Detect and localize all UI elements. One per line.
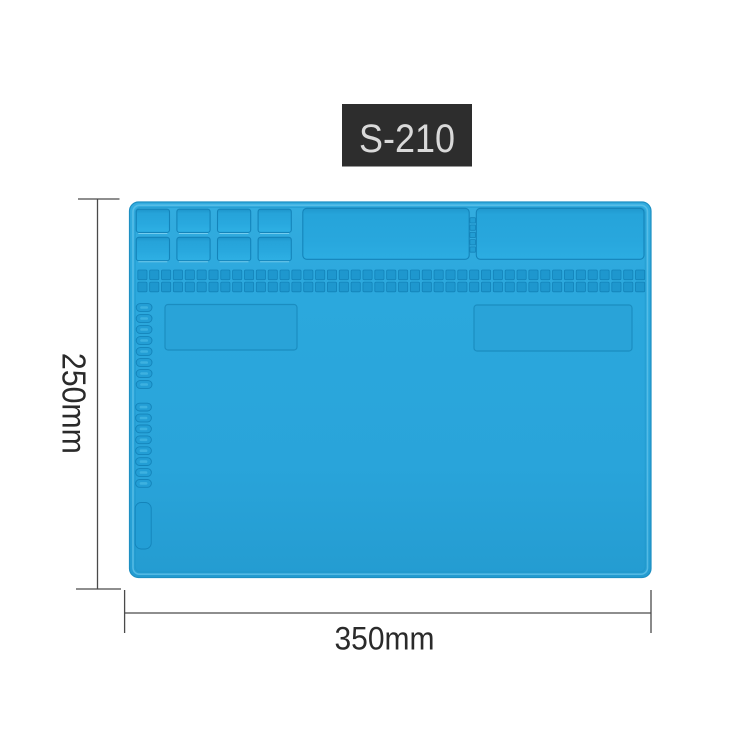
svg-text:250mm: 250mm [56,353,93,454]
svg-text:350mm: 350mm [335,620,435,656]
svg-text:S-210: S-210 [359,117,455,161]
